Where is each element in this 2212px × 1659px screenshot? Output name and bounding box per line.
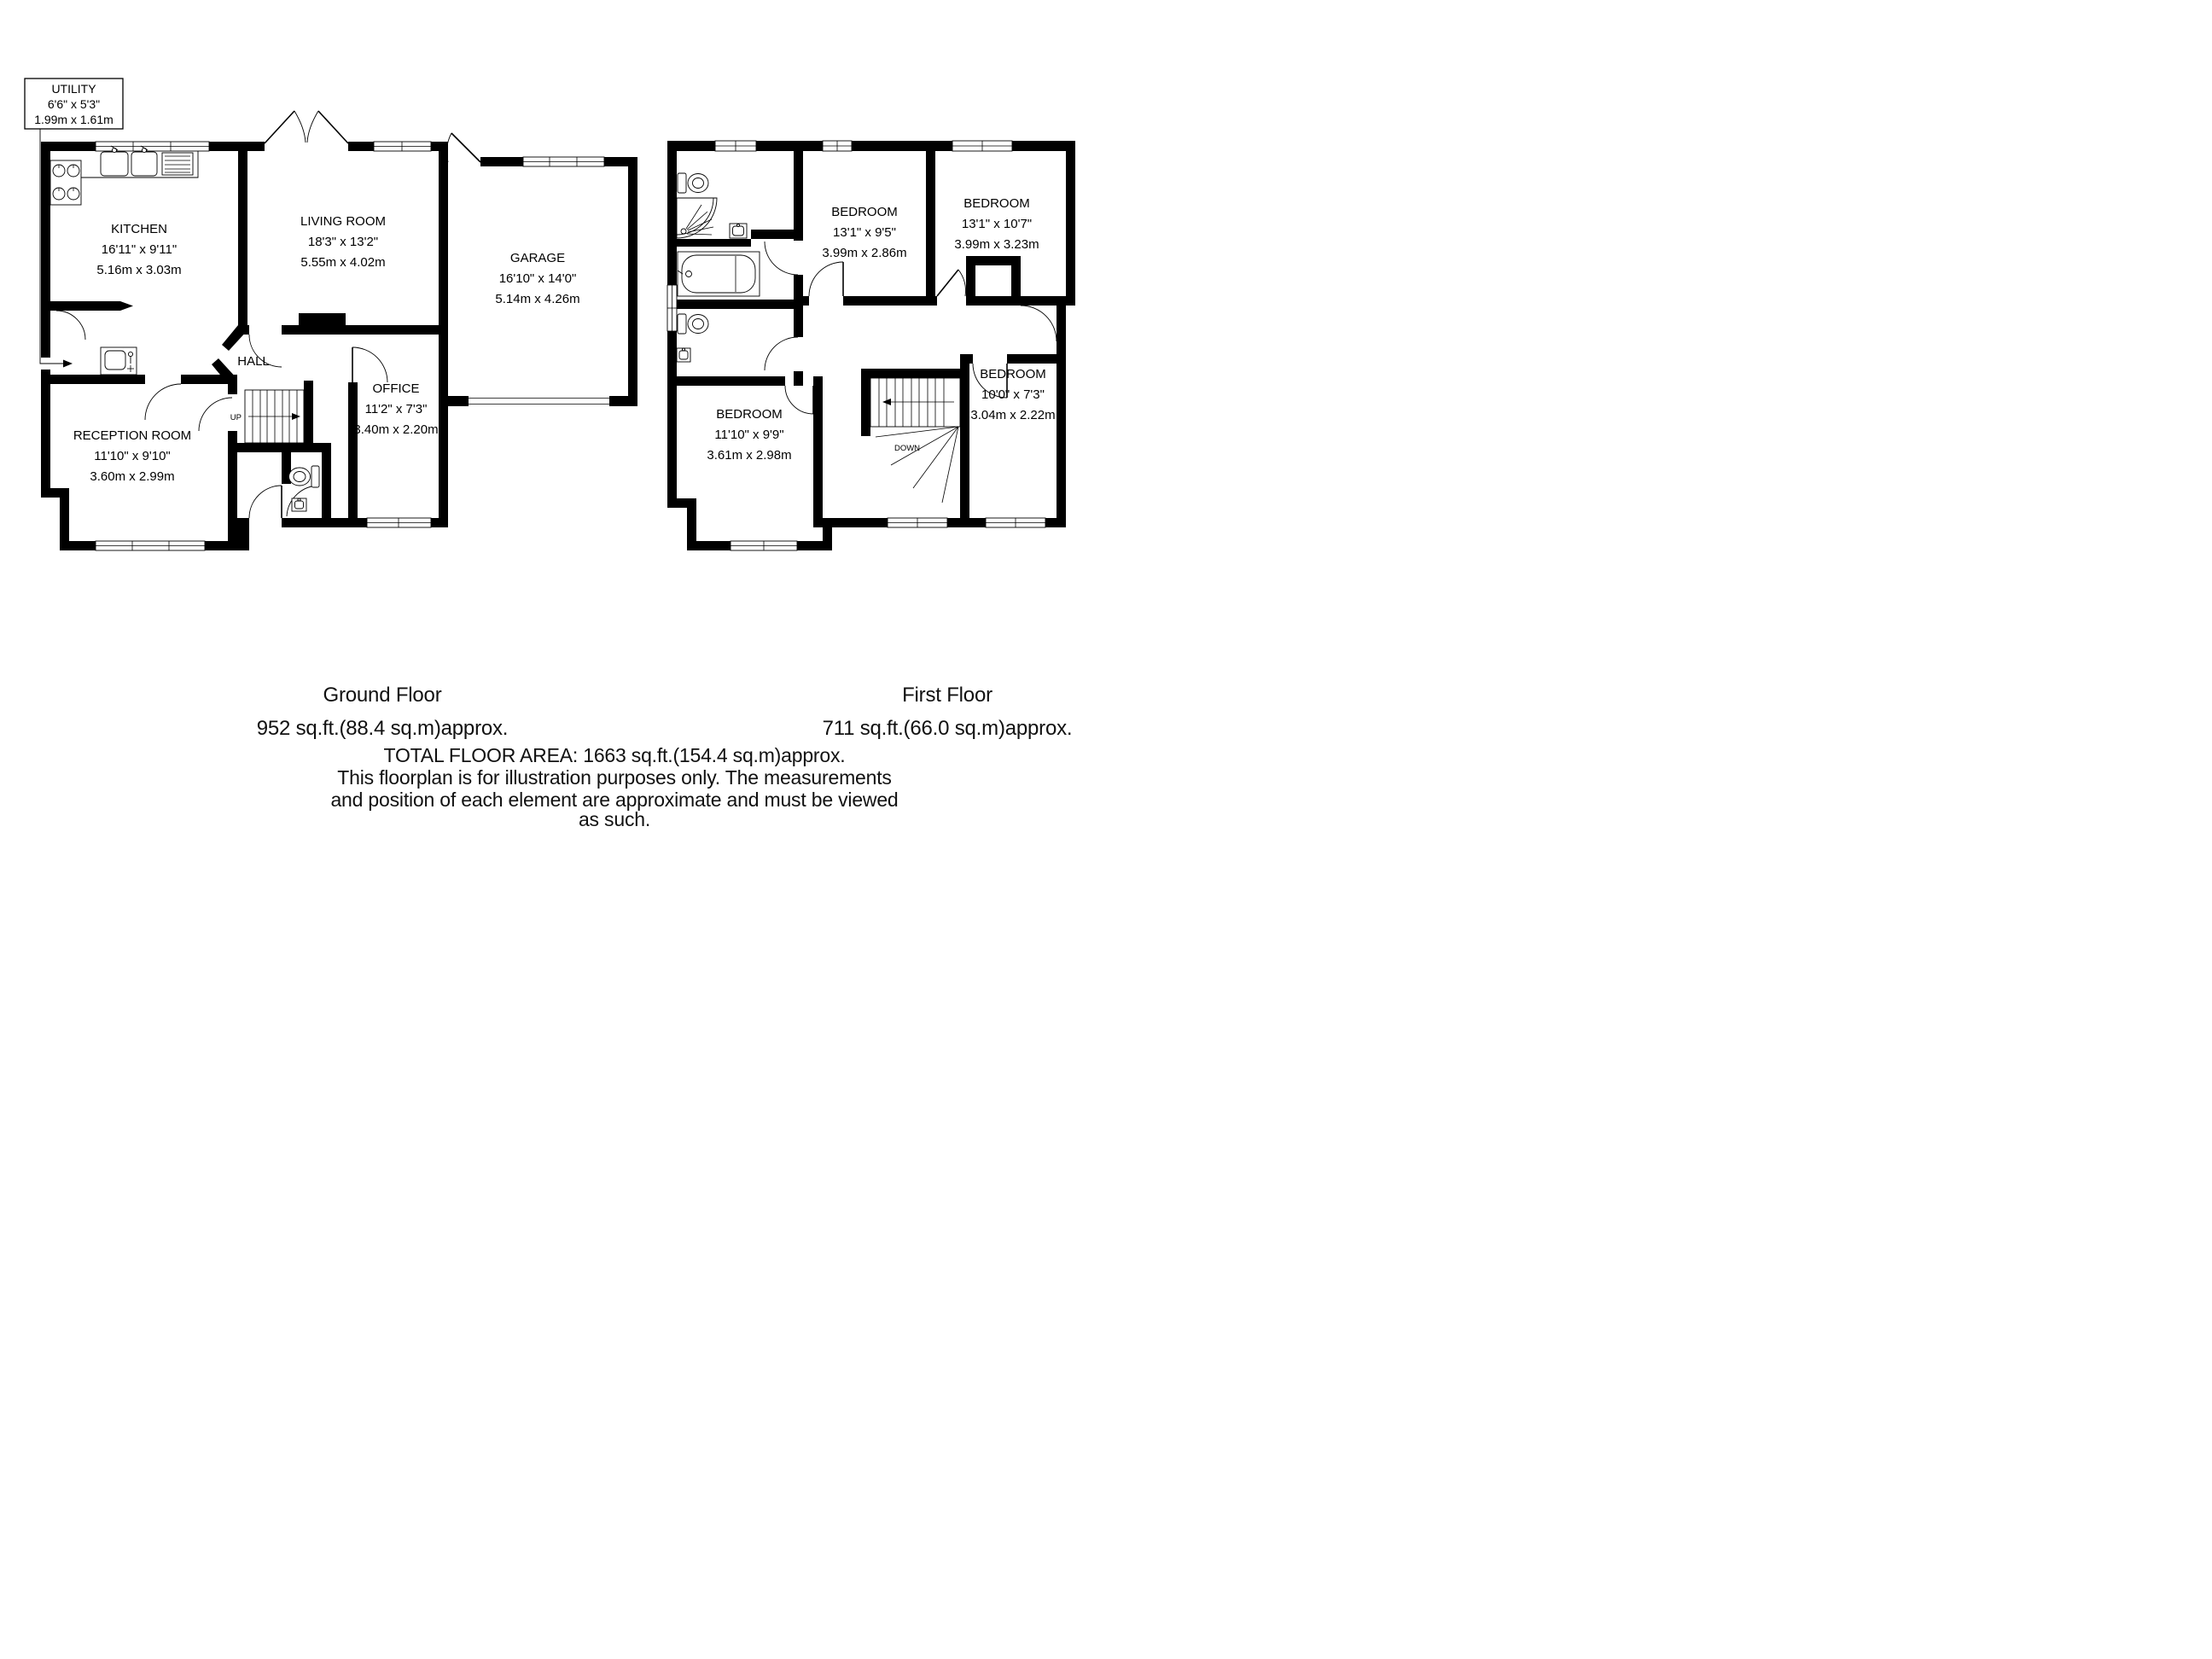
window bbox=[523, 157, 604, 166]
garage-door bbox=[469, 399, 609, 405]
room-dims-metric: 3.04m x 2.22m bbox=[970, 408, 1055, 422]
reception-room-label: RECEPTION ROOM 11'10" x 9'10" 3.60m x 2.… bbox=[73, 428, 191, 484]
door-arc bbox=[765, 242, 798, 275]
room-dims-metric: 5.16m x 3.03m bbox=[96, 263, 181, 277]
first-floor-plan: BEDROOM 13'1" x 9'5" 3.99m x 2.86m BEDRO… bbox=[667, 141, 1075, 550]
room-dims-metric: 3.60m x 2.99m bbox=[90, 469, 174, 484]
toilet-icon bbox=[289, 466, 320, 487]
room-name: KITCHEN bbox=[111, 222, 167, 236]
room-name: BEDROOM bbox=[963, 196, 1030, 211]
hall-label: HALL bbox=[237, 354, 270, 369]
toilet-icon bbox=[678, 314, 708, 334]
basin-icon bbox=[730, 224, 747, 238]
door-arc bbox=[145, 384, 181, 420]
room-dims-metric: 3.99m x 2.86m bbox=[822, 246, 906, 260]
bathroom-fixtures bbox=[677, 173, 760, 362]
room-dims-metric: 5.55m x 4.02m bbox=[300, 255, 385, 270]
door-arc bbox=[1021, 306, 1057, 341]
utility-callout: UTILITY 6'6" x 5'3" 1.99m x 1.61m bbox=[25, 79, 123, 368]
floorplan-page: KITCHEN 16'11" x 9'11" 5.16m x 3.03m LIV… bbox=[0, 0, 1106, 829]
captions: Ground Floor 952 sq.ft.(88.4 sq.m)approx… bbox=[257, 684, 1073, 740]
toilet-icon bbox=[678, 173, 708, 193]
room-dims-imperial: 13'1" x 10'7" bbox=[962, 217, 1032, 231]
footer-disclaimer: TOTAL FLOOR AREA: 1663 sq.ft.(154.4 sq.m… bbox=[330, 744, 898, 829]
room-dims-imperial: 11'10" x 9'10" bbox=[94, 449, 171, 463]
shower-icon bbox=[677, 198, 717, 238]
window bbox=[667, 285, 677, 331]
floorplan-drawing: KITCHEN 16'11" x 9'11" 5.16m x 3.03m LIV… bbox=[0, 0, 1106, 829]
callout-title: UTILITY bbox=[51, 82, 96, 96]
door bbox=[249, 486, 282, 518]
ground-floor-walls bbox=[41, 142, 637, 550]
window bbox=[888, 518, 947, 527]
first-floor-area: 711 sq.ft.(66.0 sq.m)approx. bbox=[823, 717, 1073, 740]
hob-icon bbox=[50, 160, 81, 205]
ground-floor-caption: Ground Floor bbox=[323, 684, 442, 707]
stairs-down-label: DOWN bbox=[894, 444, 920, 453]
stairs-up-label: UP bbox=[230, 413, 242, 422]
leader-arrowhead bbox=[63, 360, 73, 368]
room-name: OFFICE bbox=[373, 381, 420, 396]
room-name: HALL bbox=[237, 354, 270, 369]
window bbox=[367, 518, 431, 527]
disclaimer-line: as such. bbox=[579, 808, 650, 829]
bedroom-2-label: BEDROOM 13'1" x 10'7" 3.99m x 3.23m bbox=[954, 196, 1039, 252]
door bbox=[809, 262, 843, 296]
room-name: LIVING ROOM bbox=[300, 214, 386, 229]
bathtub-icon bbox=[678, 252, 760, 296]
wc-fixtures bbox=[289, 466, 320, 511]
window bbox=[731, 541, 797, 550]
window bbox=[952, 141, 1012, 151]
window bbox=[96, 541, 205, 550]
ground-floor-plan: KITCHEN 16'11" x 9'11" 5.16m x 3.03m LIV… bbox=[25, 79, 637, 550]
callout-imperial: 6'6" x 5'3" bbox=[48, 97, 100, 111]
door bbox=[785, 386, 813, 414]
stairs-up bbox=[245, 390, 304, 443]
room-name: BEDROOM bbox=[831, 205, 898, 219]
window bbox=[374, 142, 431, 151]
room-dims-imperial: 13'1" x 9'5" bbox=[833, 225, 896, 240]
bedroom-4-label: BEDROOM 10'0" x 7'3" 3.04m x 2.22m bbox=[970, 367, 1055, 422]
garage-label: GARAGE 16'10" x 14'0" 5.14m x 4.26m bbox=[495, 251, 579, 306]
room-name: BEDROOM bbox=[716, 407, 783, 422]
basin-icon bbox=[292, 498, 306, 511]
stairs-down bbox=[870, 378, 960, 503]
room-name: RECEPTION ROOM bbox=[73, 428, 191, 443]
door bbox=[447, 133, 480, 162]
window bbox=[715, 141, 756, 151]
room-name: BEDROOM bbox=[980, 367, 1046, 381]
door-arc bbox=[56, 311, 85, 340]
room-dims-imperial: 11'2" x 7'3" bbox=[365, 402, 428, 416]
ground-floor-area: 952 sq.ft.(88.4 sq.m)approx. bbox=[257, 717, 509, 740]
total-floor-area: TOTAL FLOOR AREA: 1663 sq.ft.(154.4 sq.m… bbox=[384, 744, 846, 766]
room-dims-metric: 3.40m x 2.20m bbox=[353, 422, 438, 437]
draining-board-icon bbox=[162, 153, 193, 175]
door-arc bbox=[765, 337, 798, 370]
door bbox=[352, 347, 387, 382]
room-dims-metric: 5.14m x 4.26m bbox=[495, 292, 579, 306]
kitchen-fixtures bbox=[50, 146, 198, 205]
room-dims-metric: 3.99m x 3.23m bbox=[954, 237, 1039, 252]
window bbox=[986, 518, 1045, 527]
callout-metric: 1.99m x 1.61m bbox=[34, 113, 114, 126]
door bbox=[937, 270, 966, 296]
basin-icon bbox=[677, 348, 690, 362]
room-dims-metric: 3.61m x 2.98m bbox=[707, 448, 791, 463]
window bbox=[823, 141, 852, 151]
room-name: GARAGE bbox=[510, 251, 565, 265]
office-label: OFFICE 11'2" x 7'3" 3.40m x 2.20m bbox=[353, 381, 438, 437]
door-arc bbox=[199, 398, 232, 431]
room-dims-imperial: 16'11" x 9'11" bbox=[102, 242, 177, 257]
bedroom-1-label: BEDROOM 13'1" x 9'5" 3.99m x 2.86m bbox=[822, 205, 906, 260]
utility-sink-icon bbox=[101, 347, 137, 375]
room-dims-imperial: 11'10" x 9'9" bbox=[714, 428, 783, 442]
living-room-label: LIVING ROOM 18'3" x 13'2" 5.55m x 4.02m bbox=[300, 214, 386, 270]
disclaimer-line: This floorplan is for illustration purpo… bbox=[337, 766, 891, 789]
room-dims-imperial: 10'0" x 7'3" bbox=[981, 387, 1045, 402]
kitchen-label: KITCHEN 16'11" x 9'11" 5.16m x 3.03m bbox=[96, 222, 181, 277]
bedroom-3-label: BEDROOM 11'10" x 9'9" 3.61m x 2.98m bbox=[707, 407, 791, 463]
first-floor-caption: First Floor bbox=[902, 684, 992, 707]
room-dims-imperial: 16'10" x 14'0" bbox=[499, 271, 577, 286]
double-door bbox=[265, 111, 348, 143]
room-dims-imperial: 18'3" x 13'2" bbox=[308, 235, 378, 249]
